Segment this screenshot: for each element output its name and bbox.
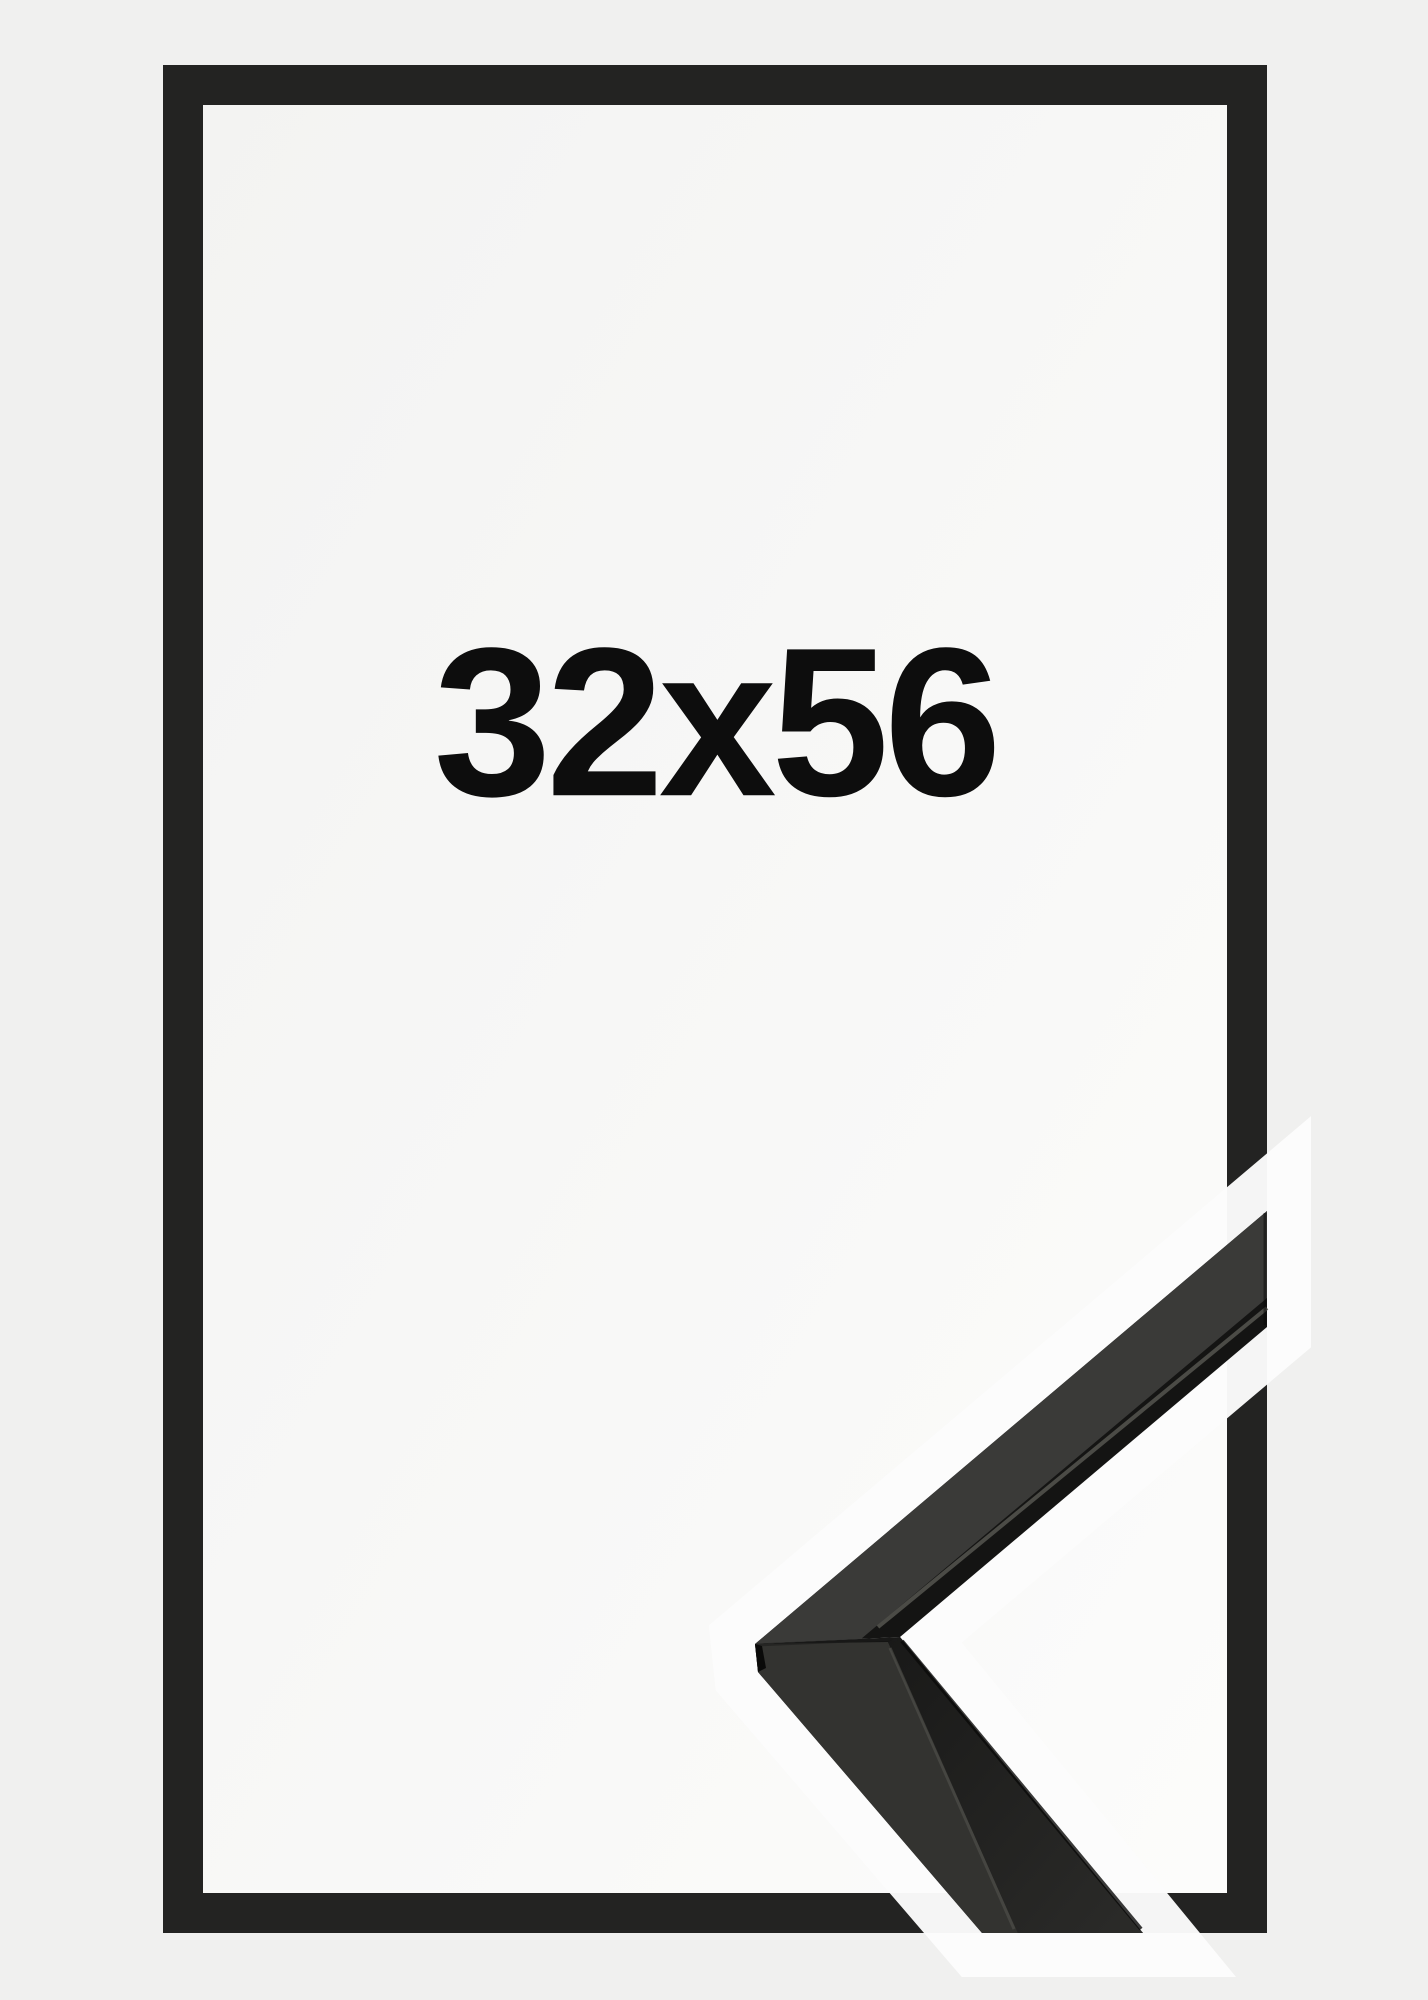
frame-graphic [0,0,1428,2000]
size-label: 32x56 [433,600,996,844]
product-image-stage: 32x56 [0,0,1428,2000]
